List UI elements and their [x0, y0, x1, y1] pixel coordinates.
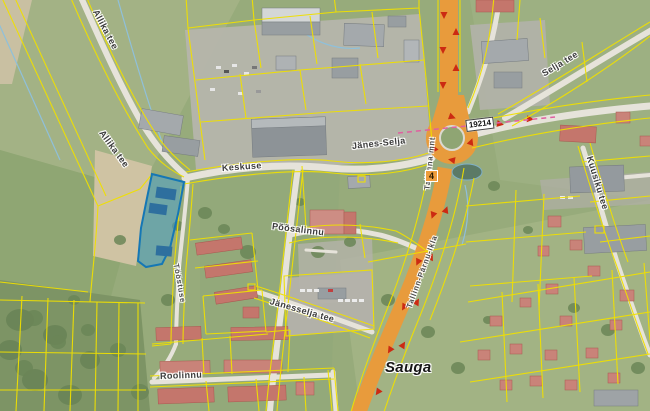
- pond: [452, 164, 482, 180]
- road-number-badge-4: 4: [425, 170, 438, 182]
- map-canvas[interactable]: Allika tee Allika tee Keskuse Jänes-Selj…: [0, 0, 650, 411]
- place-label-sauga: Sauga: [385, 360, 432, 375]
- street-label-roolinnu: Roolinnu: [160, 371, 202, 381]
